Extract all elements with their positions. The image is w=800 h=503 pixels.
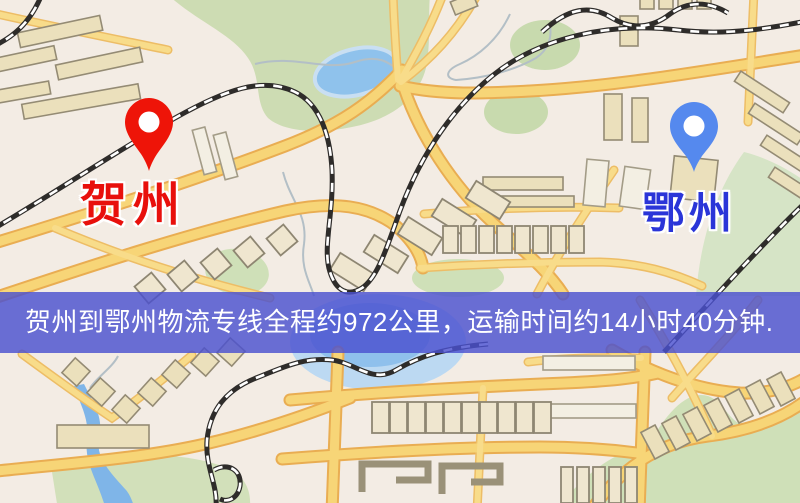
pin-hole — [139, 112, 160, 133]
pin-body — [670, 102, 718, 172]
map-view: 贺州 鄂州 贺州到鄂州物流专线全程约972公里，运输时间约14小时40分钟. — [0, 0, 800, 503]
destination-label: 鄂州 — [642, 179, 736, 241]
map-pin-icon — [665, 100, 723, 174]
route-info-text: 贺州到鄂州物流专线全程约972公里，运输时间约14小时40分钟. — [25, 307, 773, 337]
pin-body — [125, 98, 173, 171]
pin-hole — [684, 116, 705, 137]
origin-label: 贺州 — [80, 166, 186, 235]
origin-pin[interactable] — [121, 96, 177, 174]
route-info-banner: 贺州到鄂州物流专线全程约972公里，运输时间约14小时40分钟. — [0, 292, 800, 353]
map-background — [0, 0, 800, 503]
map-pin-icon — [121, 96, 177, 174]
destination-pin[interactable] — [665, 100, 723, 174]
